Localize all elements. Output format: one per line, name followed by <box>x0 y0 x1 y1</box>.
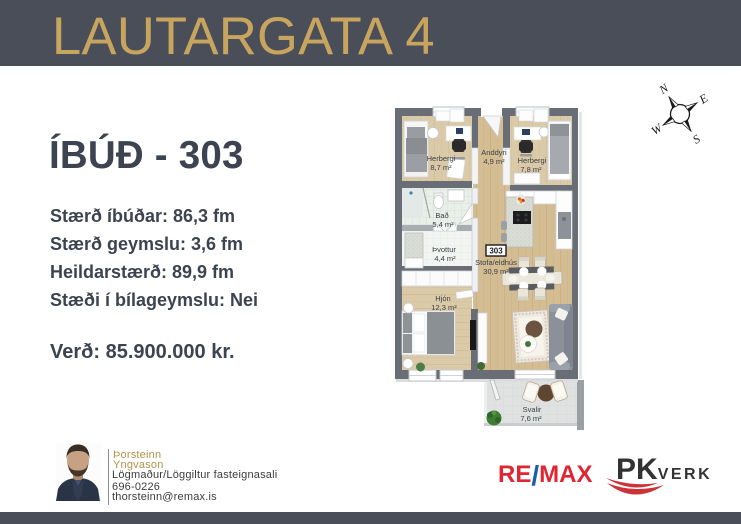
svg-text:Bað: Bað <box>435 211 448 220</box>
svg-text:12,3 m²: 12,3 m² <box>431 303 457 312</box>
svg-text:303: 303 <box>489 247 503 256</box>
svg-text:30,9 m²: 30,9 m² <box>483 267 509 276</box>
svg-text:Hjón: Hjón <box>435 294 450 303</box>
svg-text:Þvottur: Þvottur <box>432 245 456 254</box>
svg-text:7,8 m²: 7,8 m² <box>520 165 542 174</box>
svg-text:N: N <box>656 80 672 97</box>
svg-text:Herbergi: Herbergi <box>427 154 456 163</box>
svg-text:S: S <box>690 132 703 147</box>
svg-text:4,4 m²: 4,4 m² <box>434 254 456 263</box>
svg-text:8,7 m²: 8,7 m² <box>430 163 452 172</box>
svg-text:W: W <box>649 120 666 138</box>
svg-text:Stofa/eldhús: Stofa/eldhús <box>475 258 517 267</box>
svg-text:7,6 m²: 7,6 m² <box>520 414 542 423</box>
svg-text:5,4 m²: 5,4 m² <box>432 220 454 229</box>
svg-text:Anddyri: Anddyri <box>481 148 507 157</box>
svg-text:Herbergi: Herbergi <box>518 156 547 165</box>
svg-text:E: E <box>696 91 711 108</box>
svg-text:4,9 m²: 4,9 m² <box>483 157 505 166</box>
svg-text:Svalir: Svalir <box>523 405 542 414</box>
